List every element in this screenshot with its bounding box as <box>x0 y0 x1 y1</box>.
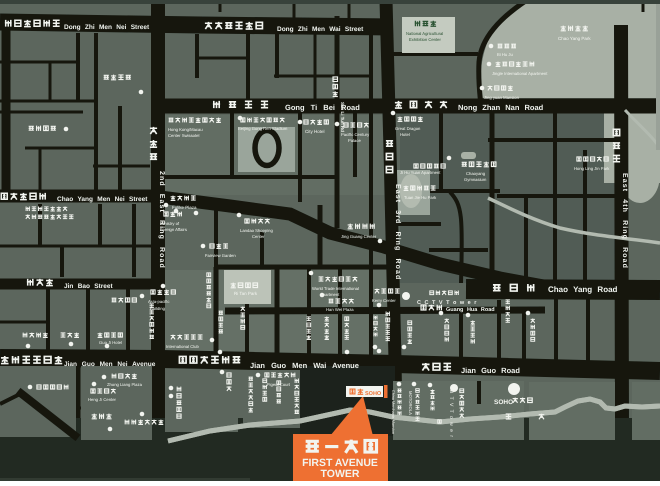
svg-text:Dong Zhi Men Nei Street: Dong Zhi Men Nei Street <box>64 24 150 31</box>
svg-text:Figeut Court: Figeut Court <box>267 382 291 387</box>
svg-text:Hotel: Hotel <box>400 132 410 137</box>
svg-text:SOHO: SOHO <box>494 399 513 406</box>
svg-text:Fairview Garden: Fairview Garden <box>205 253 236 258</box>
svg-text:Center: Center <box>252 234 265 239</box>
svg-text:Chaoyang: Chaoyang <box>466 171 486 176</box>
svg-text:Center Swissotel: Center Swissotel <box>168 133 199 138</box>
svg-text:Jian Guo Men Wai Avenue: Jian Guo Men Wai Avenue <box>250 361 359 370</box>
svg-text:World Trade International: World Trade International <box>312 286 359 291</box>
svg-text:Hong Kong/Macau: Hong Kong/Macau <box>168 127 203 132</box>
svg-text:National Agricultural: National Agricultural <box>406 31 443 36</box>
svg-text:City Hotel: City Hotel <box>305 129 325 134</box>
svg-text:Jian Guo Men Nei Avenue: Jian Guo Men Nei Avenue <box>64 361 156 368</box>
svg-text:Jing yuan Mansion: Jing yuan Mansion <box>484 95 520 100</box>
svg-text:Hong Ling Jin Park: Hong Ling Jin Park <box>574 166 610 171</box>
svg-text:Great Dragon: Great Dragon <box>395 126 421 131</box>
svg-text:Guo Ji Hotel: Guo Ji Hotel <box>99 340 122 345</box>
svg-text:Chao Yang Men Nei Street: Chao Yang Men Nei Street <box>57 196 148 203</box>
svg-text:Heng Ji Center: Heng Ji Center <box>88 397 117 402</box>
svg-text:B T V T o w e r: B T V T o w e r <box>448 390 454 438</box>
svg-text:Dong Zhi Men Wai Street: Dong Zhi Men Wai Street <box>277 26 364 33</box>
svg-text:Foreign Affairs: Foreign Affairs <box>160 227 187 232</box>
svg-text:China Merchants Mansion: China Merchants Mansion <box>391 390 395 434</box>
svg-text:Tuan Jie Hu Park: Tuan Jie Hu Park <box>404 195 437 200</box>
svg-text:Ji Hu Yuan Apartment: Ji Hu Yuan Apartment <box>400 170 441 175</box>
svg-text:Chao Yang Road: Chao Yang Road <box>548 285 618 294</box>
svg-text:Exhibition Center: Exhibition Center <box>409 37 441 42</box>
svg-text:Jing Guang Center: Jing Guang Center <box>341 234 377 239</box>
svg-text:Bi Hu Ju: Bi Hu Ju <box>497 52 513 57</box>
svg-text:TOWER: TOWER <box>321 468 360 480</box>
svg-text:International Club: International Club <box>166 344 199 349</box>
svg-text:East 3rd Ring Road: East 3rd Ring Road <box>394 184 402 280</box>
svg-text:Chao Yang Park: Chao Yang Park <box>558 36 591 41</box>
svg-text:Kerry Center: Kerry Center <box>372 298 396 303</box>
svg-text:Han Wei Plaza: Han Wei Plaza <box>326 307 354 312</box>
svg-text:Ministry of: Ministry of <box>160 221 180 226</box>
svg-text:Jingle International Apartme: Jingle International Apartment <box>492 71 548 76</box>
svg-text:Jin Bao Street: Jin Bao Street <box>64 283 114 290</box>
svg-text:Pacific Century: Pacific Century <box>341 132 370 137</box>
svg-text:Guang Hua Road: Guang Hua Road <box>446 307 495 313</box>
svg-text:Landao Shopping: Landao Shopping <box>240 228 274 233</box>
svg-text:Zhong Liang Plaza: Zhong Liang Plaza <box>107 382 143 387</box>
svg-text:Gymnasium: Gymnasium <box>464 177 487 182</box>
svg-text:Palace: Palace <box>348 138 361 143</box>
svg-text:MOTOROLA: MOTOROLA <box>408 391 413 415</box>
svg-text:SOHO: SOHO <box>365 391 382 397</box>
svg-text:East 4th Ring Road: East 4th Ring Road <box>621 173 629 269</box>
svg-text:San Li Tun Rd: San Li Tun Rd <box>340 102 345 132</box>
svg-text:Gong Ti Bei Road: Gong Ti Bei Road <box>285 103 360 112</box>
svg-text:Asia-pacific: Asia-pacific <box>148 299 169 304</box>
svg-text:C C T V T o w e r: C C T V T o w e r <box>417 300 477 306</box>
svg-text:Nong Zhan Nan Road: Nong Zhan Nan Road <box>458 103 544 112</box>
svg-text:Beijing Gong Ren Stadium: Beijing Gong Ren Stadium <box>238 126 288 131</box>
svg-text:Jian Guo Road: Jian Guo Road <box>461 366 520 375</box>
svg-text:Ri Tan Park: Ri Tan Park <box>234 291 258 296</box>
svg-text:2nd East Ring Road: 2nd East Ring Road <box>158 171 166 269</box>
